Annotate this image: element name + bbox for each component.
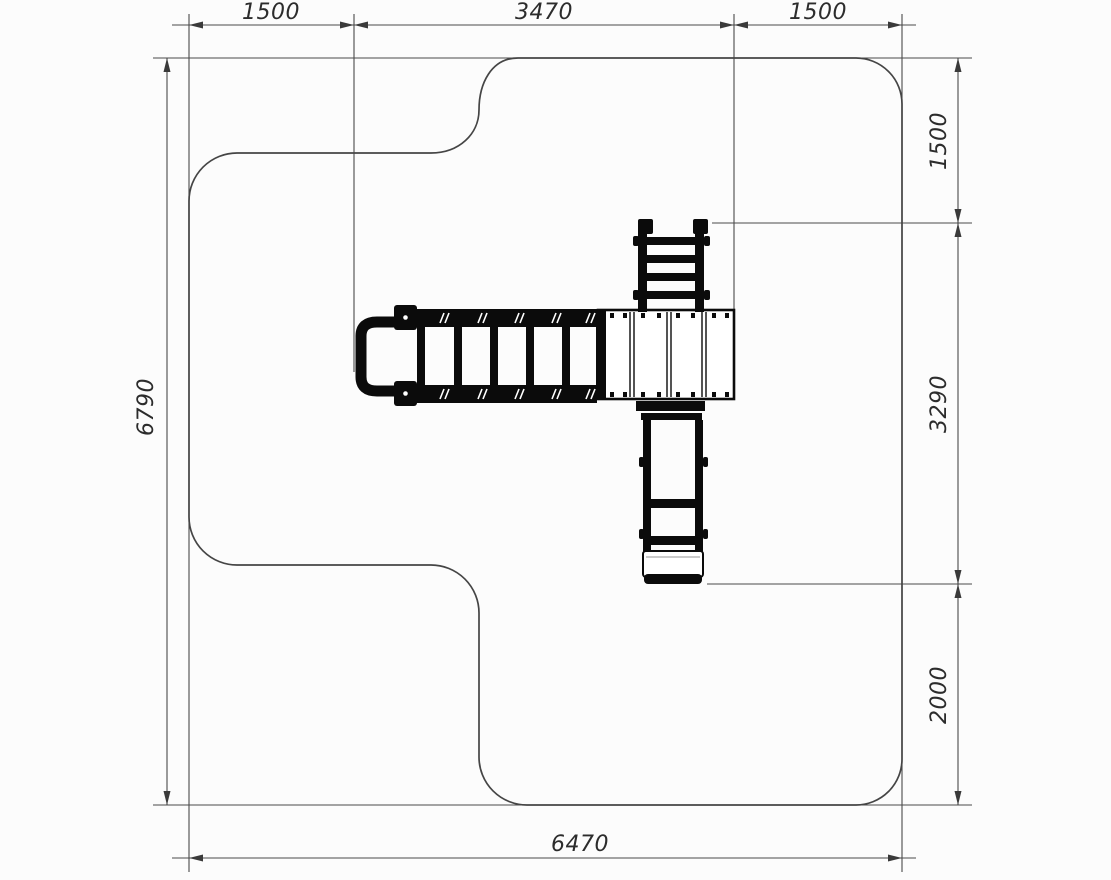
equipment-top-view bbox=[361, 219, 734, 584]
handrail-loop bbox=[361, 322, 399, 391]
dim-label-top-middle: 3470 bbox=[515, 0, 573, 25]
dim-label-right-top: 1500 bbox=[927, 112, 952, 170]
dim-label-top-right: 1500 bbox=[789, 0, 847, 25]
technical-drawing-page: 1500 3470 1500 6790 1500 3290 2000 6470 bbox=[0, 0, 1111, 880]
dim-label-top-left: 1500 bbox=[242, 0, 300, 25]
plan-drawing: 1500 3470 1500 6790 1500 3290 2000 6470 bbox=[0, 0, 1111, 880]
safety-zone-outline bbox=[189, 58, 902, 805]
stairs-bottom bbox=[636, 401, 708, 584]
corner-posts bbox=[394, 305, 417, 406]
dim-label-bottom: 6470 bbox=[551, 832, 609, 857]
dimension-labels: 1500 3470 1500 6790 1500 3290 2000 6470 bbox=[134, 0, 952, 857]
dimension-arrows bbox=[164, 22, 962, 862]
platform bbox=[596, 309, 734, 400]
extension-lines bbox=[153, 14, 972, 872]
dim-label-right-bottom: 2000 bbox=[927, 666, 952, 724]
dimension-lines bbox=[167, 25, 958, 858]
dim-label-left-side: 6790 bbox=[134, 378, 159, 436]
ramp-ladder bbox=[361, 305, 597, 406]
climbing-ladder-top bbox=[633, 219, 710, 312]
dim-label-right-middle: 3290 bbox=[927, 375, 952, 433]
